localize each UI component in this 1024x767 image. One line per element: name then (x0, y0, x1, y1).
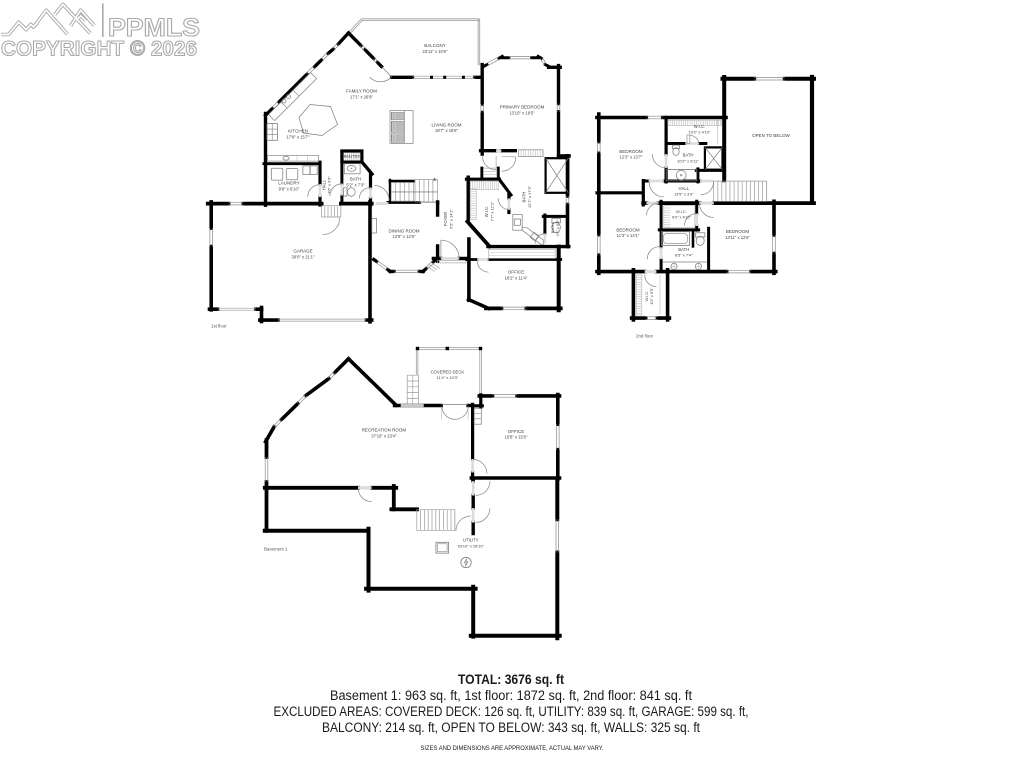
svg-text:7'7" x 12'2": 7'7" x 12'2" (490, 201, 495, 221)
svg-text:BATH: BATH (522, 192, 527, 203)
svg-text:W.I.C.: W.I.C. (484, 206, 489, 217)
svg-text:W.I.C.: W.I.C. (676, 209, 687, 214)
svg-text:11'4" x 10'3": 11'4" x 10'3" (437, 375, 459, 380)
svg-text:PANTRY: PANTRY (344, 154, 361, 159)
svg-text:23'11" x 10'6": 23'11" x 10'6" (423, 49, 448, 54)
svg-text:OPEN TO BELOW: OPEN TO BELOW (752, 133, 790, 138)
svg-text:GARAGE: GARAGE (293, 249, 312, 254)
svg-text:Basement 1: Basement 1 (264, 547, 288, 552)
svg-text:FOYER: FOYER (443, 212, 448, 226)
svg-text:BATH: BATH (678, 247, 689, 252)
svg-text:13'11" x 12'6": 13'11" x 12'6" (725, 235, 750, 240)
svg-text:BEDROOM: BEDROOM (726, 229, 750, 234)
svg-text:BEDROOM: BEDROOM (616, 227, 640, 232)
svg-text:9'9" x 6'10": 9'9" x 6'10" (279, 186, 300, 191)
svg-text:16'2" x 11'4": 16'2" x 11'4" (505, 275, 528, 280)
svg-text:LAUNDRY: LAUNDRY (278, 181, 299, 186)
svg-text:11'3" x 14'1": 11'3" x 14'1" (617, 233, 640, 238)
svg-text:13'5" x 3'9": 13'5" x 3'9" (674, 192, 694, 197)
svg-text:W.I.C.: W.I.C. (644, 291, 649, 302)
svg-text:12'3" x 13'7": 12'3" x 13'7" (620, 155, 643, 160)
svg-text:5'5" x 14'1": 5'5" x 14'1" (449, 209, 454, 229)
svg-text:BATH: BATH (683, 153, 694, 158)
svg-text:FAMILY ROOM: FAMILY ROOM (346, 89, 377, 94)
svg-text:W.I.C.: W.I.C. (694, 124, 705, 129)
svg-text:13'10" x 19'5": 13'10" x 19'5" (509, 110, 535, 115)
svg-text:15'8" x 15'0": 15'8" x 15'0" (505, 435, 528, 440)
svg-text:HALL: HALL (679, 186, 690, 191)
svg-text:BALCONY: 214 sq. ft, OPEN TO B: BALCONY: 214 sq. ft, OPEN TO BELOW: 343 … (322, 720, 700, 735)
svg-text:37'10" x 23'4": 37'10" x 23'4" (371, 433, 397, 438)
svg-text:BALCONY: BALCONY (424, 43, 446, 48)
svg-text:COPYRIGHT © 2026: COPYRIGHT © 2026 (1, 37, 197, 61)
svg-text:17'1" x 26'9": 17'1" x 26'9" (350, 94, 373, 99)
svg-text:17'8" x 15'7": 17'8" x 15'7" (287, 134, 310, 139)
svg-text:5'2" x 7'3": 5'2" x 7'3" (346, 183, 365, 188)
svg-text:OFFICE: OFFICE (508, 429, 525, 434)
svg-text:BATH: BATH (550, 223, 555, 233)
svg-text:4'1" x 9'6": 4'1" x 9'6" (556, 219, 560, 236)
svg-text:10'2" x 6'11": 10'2" x 6'11" (677, 158, 699, 163)
svg-text:53'10" x 28'10": 53'10" x 28'10" (458, 543, 485, 548)
svg-text:12'9" x 12'6": 12'9" x 12'6" (393, 234, 416, 239)
svg-text:KITCHEN: KITCHEN (288, 129, 308, 134)
svg-text:BATH: BATH (350, 177, 361, 182)
svg-text:COVERED DECK: COVERED DECK (431, 369, 465, 374)
svg-text:8'5" x 7'4": 8'5" x 7'4" (675, 253, 693, 258)
svg-text:30'0" x 21'1": 30'0" x 21'1" (292, 254, 315, 259)
svg-text:1st floor: 1st floor (211, 324, 227, 329)
svg-text:TOTAL: 3676 sq. ft: TOTAL: 3676 sq. ft (458, 672, 564, 687)
svg-text:RECREATION ROOM: RECREATION ROOM (362, 428, 407, 433)
svg-text:Basement 1: 963 sq. ft, 1st fl: Basement 1: 963 sq. ft, 1st floor: 1872 … (330, 688, 692, 703)
svg-text:UTILITY: UTILITY (463, 538, 479, 543)
svg-text:LIVING ROOM: LIVING ROOM (431, 122, 461, 127)
svg-text:6'2" x 9'5": 6'2" x 9'5" (650, 287, 654, 304)
svg-text:18'7" x 18'8": 18'7" x 18'8" (435, 128, 458, 133)
svg-text:10'2" x 4'10": 10'2" x 4'10" (689, 130, 712, 135)
svg-text:SIZES AND DIMENSIONS ARE APPRO: SIZES AND DIMENSIONS ARE APPROXIMATE, AC… (421, 745, 604, 752)
svg-text:OFFICE: OFFICE (508, 270, 525, 275)
svg-text:3'6" x 9'9": 3'6" x 9'9" (327, 176, 332, 194)
svg-text:12'7" x 17'3": 12'7" x 17'3" (527, 185, 532, 208)
svg-text:PRIMARY BEDROOM: PRIMARY BEDROOM (500, 105, 545, 110)
svg-text:DINING ROOM: DINING ROOM (389, 228, 420, 233)
svg-text:BEDROOM: BEDROOM (619, 149, 643, 154)
svg-text:EXCLUDED AREAS: COVERED DECK:: EXCLUDED AREAS: COVERED DECK: 126 sq. ft… (274, 704, 749, 719)
svg-text:6'0" x 4'10": 6'0" x 4'10" (672, 216, 691, 220)
svg-text:2nd floor: 2nd floor (636, 334, 654, 339)
